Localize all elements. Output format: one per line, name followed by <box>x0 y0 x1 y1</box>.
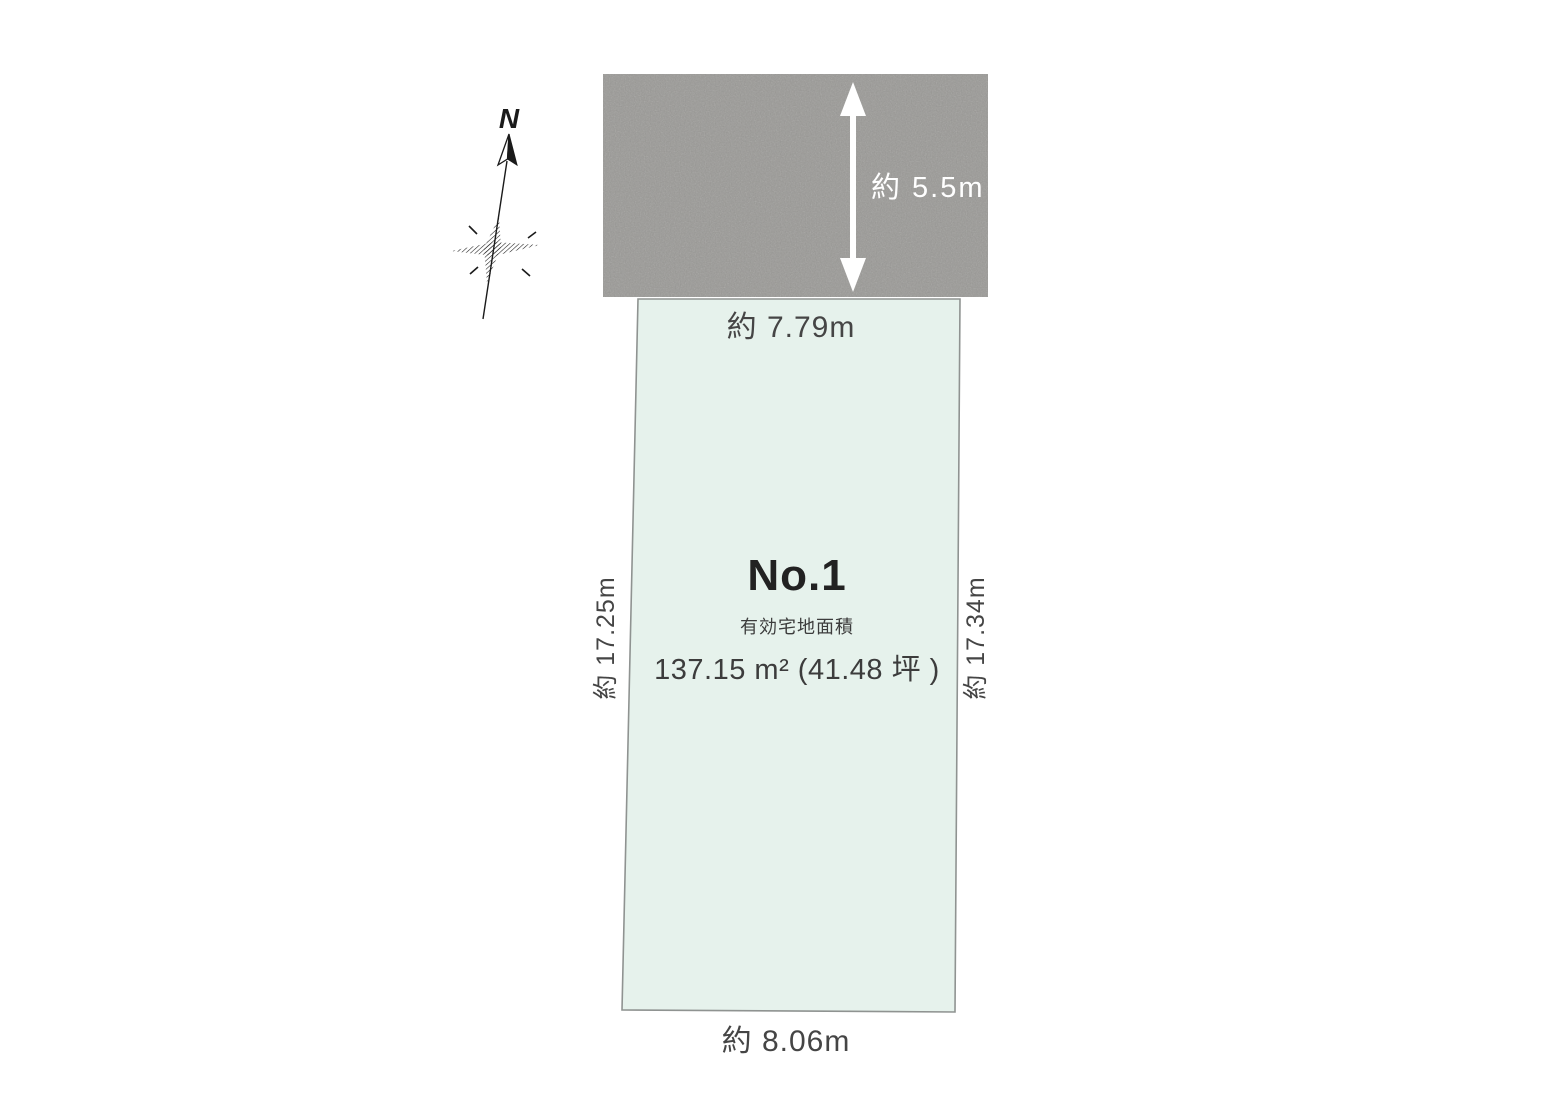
lot-east-edge-label: 約 17.34m <box>963 538 989 738</box>
lot-west-edge-label: 約 17.25m <box>593 538 619 738</box>
lot-north-edge-label: 約 7.79m <box>641 302 941 346</box>
compass-north-label: N <box>499 103 520 134</box>
lot-number: No.1 <box>647 552 947 600</box>
lot-south-edge-label: 約 8.06m <box>636 1016 936 1060</box>
road-depth-label: 約 5.5m <box>871 164 985 206</box>
lot-site-plan: N <box>0 0 1568 1111</box>
compass-needle-icon <box>483 134 517 319</box>
lot-info: No.1 有効宅地面積 137.15 m² (41.48 坪 ) <box>647 552 947 688</box>
compass-star-icon <box>451 217 540 283</box>
north-compass-icon: N <box>440 95 550 330</box>
lot-area-value: 137.15 m² (41.48 坪 ) <box>647 646 947 688</box>
road-surface: 約 5.5m <box>603 74 988 297</box>
lot-area-caption: 有効宅地面積 <box>647 613 947 639</box>
